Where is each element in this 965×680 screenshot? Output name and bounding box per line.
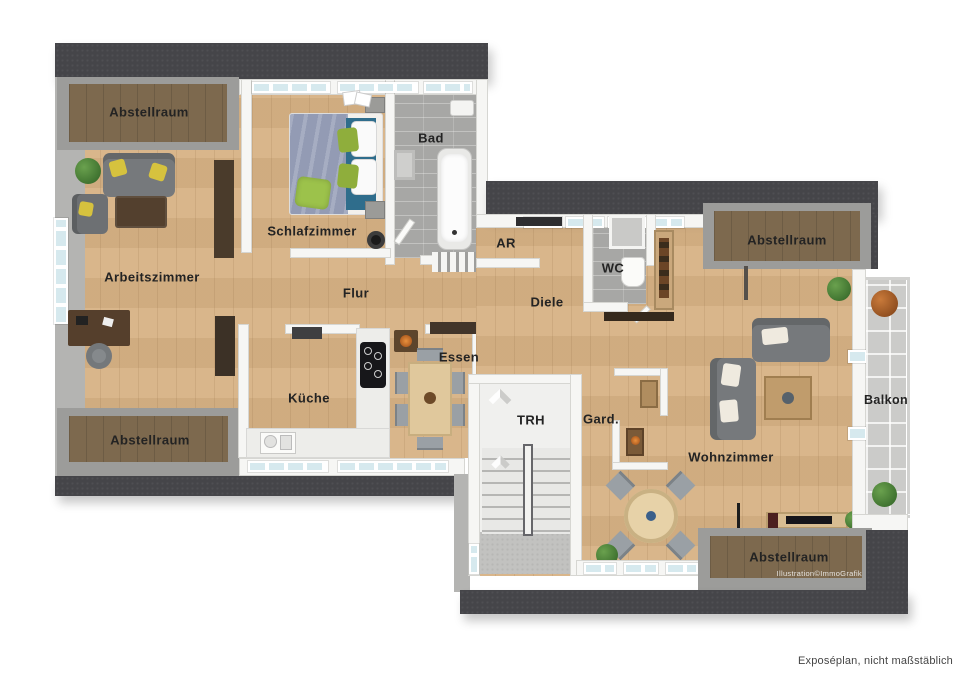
room-label-diele: Diele [530, 296, 563, 309]
stair-stringer [523, 444, 533, 536]
room-label-wc: WC [602, 262, 624, 275]
sink-basin [280, 435, 292, 450]
dining-chair [395, 404, 408, 426]
sofa-pillow-white [721, 363, 742, 387]
wall-wc-west [583, 214, 593, 312]
floor-plan: Abstellraum Schlafzimmer Bad Arbeitszimm… [0, 0, 965, 680]
window-wohnzimmer-2 [624, 563, 658, 574]
roof-band-bottom-left [55, 476, 463, 496]
window-trh [469, 544, 479, 574]
plant-balcony [871, 290, 898, 317]
room-label-abstellraum-tr: Abstellraum [747, 234, 827, 247]
kamin-fire [631, 436, 640, 445]
room-label-essen: Essen [439, 351, 479, 364]
table-decor [646, 511, 656, 521]
room-label-kueche: Küche [288, 392, 330, 405]
window-wohnzimmer-1 [584, 563, 616, 574]
roof-band-right-lower [866, 530, 908, 592]
washbasin [394, 150, 415, 180]
plant [827, 277, 851, 301]
office-chair [86, 343, 112, 369]
wall-shelf [292, 327, 322, 339]
room-label-wohnzimmer: Wohnzimmer [688, 451, 773, 464]
room-label-abstellraum-tl: Abstellraum [109, 106, 189, 119]
plant [75, 158, 101, 184]
room-label-abstellraum-br: Abstellraum [749, 551, 829, 564]
sofa-pillow-white [719, 399, 739, 422]
room-label-trh: TRH [517, 414, 545, 427]
bed-pillow-green [337, 127, 359, 153]
plant-balcony [872, 482, 897, 507]
table-decor [782, 392, 794, 404]
wall-ar-sued [476, 258, 540, 268]
window-arbeitszimmer [54, 218, 68, 324]
window-schlafzimmer-1 [252, 82, 330, 93]
wall-wc-sued [583, 302, 628, 312]
wall-trh-nord [468, 374, 582, 384]
window-kueche [248, 461, 328, 472]
sink-basin [264, 435, 277, 448]
coffee-table [115, 196, 167, 228]
roof-band-top-left [55, 43, 488, 79]
speaker [367, 231, 385, 249]
room-label-gard: Gard. [583, 413, 619, 426]
wall-gard-ost [660, 368, 668, 416]
room-label-balkon: Balkon [864, 394, 908, 407]
wardrobe [640, 380, 658, 408]
trh-concrete [480, 532, 578, 574]
shower [612, 218, 642, 246]
room-label-abstellraum-bl: Abstellraum [110, 434, 190, 447]
balcony-door-2 [848, 427, 868, 440]
faucet [452, 230, 457, 235]
wardrobe-shelf-ar [516, 217, 562, 226]
wall-gard-sued [612, 462, 668, 470]
dining-chair [395, 372, 408, 394]
cooktop-burner [364, 362, 372, 370]
radiator [450, 100, 474, 116]
room-label-ar: AR [496, 237, 516, 250]
room-label-flur: Flur [343, 287, 369, 300]
window-wohnzimmer-3 [666, 563, 698, 574]
illustration-credit: Illustration©ImmoGrafik [700, 569, 862, 578]
toilet [622, 258, 644, 286]
room-label-arbeitszimmer: Arbeitszimmer [104, 271, 200, 284]
cooktop-burner [374, 370, 382, 378]
room-label-schlafzimmer: Schlafzimmer [267, 225, 356, 238]
balcony-door-1 [848, 350, 868, 363]
towel-radiator [432, 252, 476, 272]
dining-chair [452, 404, 465, 426]
roof-band-bottom-right [460, 590, 908, 614]
dining-chair [452, 372, 465, 394]
wall-arbeits-schlaf [241, 79, 252, 253]
window-essen [338, 461, 448, 472]
laptop [76, 316, 88, 325]
cooktop-burner [364, 347, 372, 355]
shelf-decor [659, 238, 669, 298]
sideboard [214, 160, 234, 258]
bed-pillow-green [337, 163, 359, 189]
table-decor [424, 392, 436, 404]
sideboard-dark [430, 322, 480, 334]
wall-schlaf-sued [290, 248, 391, 258]
cooktop-burner [374, 352, 382, 360]
dining-chair [417, 437, 443, 450]
wall-trh-ost [570, 374, 582, 576]
console-diele [604, 312, 674, 321]
cabinet [215, 316, 235, 376]
footer-note: Exposéplan, nicht maßstäblich [713, 655, 953, 667]
sofa-pillow-white [761, 327, 789, 346]
room-label-bad: Bad [418, 132, 444, 145]
tv [786, 516, 832, 524]
speaker [768, 513, 778, 528]
window-bad [424, 82, 472, 93]
kamin-fire [400, 335, 412, 347]
bathtub-inner [441, 154, 468, 242]
balcony-railing [866, 276, 910, 280]
armchair-pillow [78, 201, 94, 217]
nightstand [366, 202, 384, 218]
wall-fin [744, 266, 748, 300]
bed-throw [294, 176, 332, 210]
